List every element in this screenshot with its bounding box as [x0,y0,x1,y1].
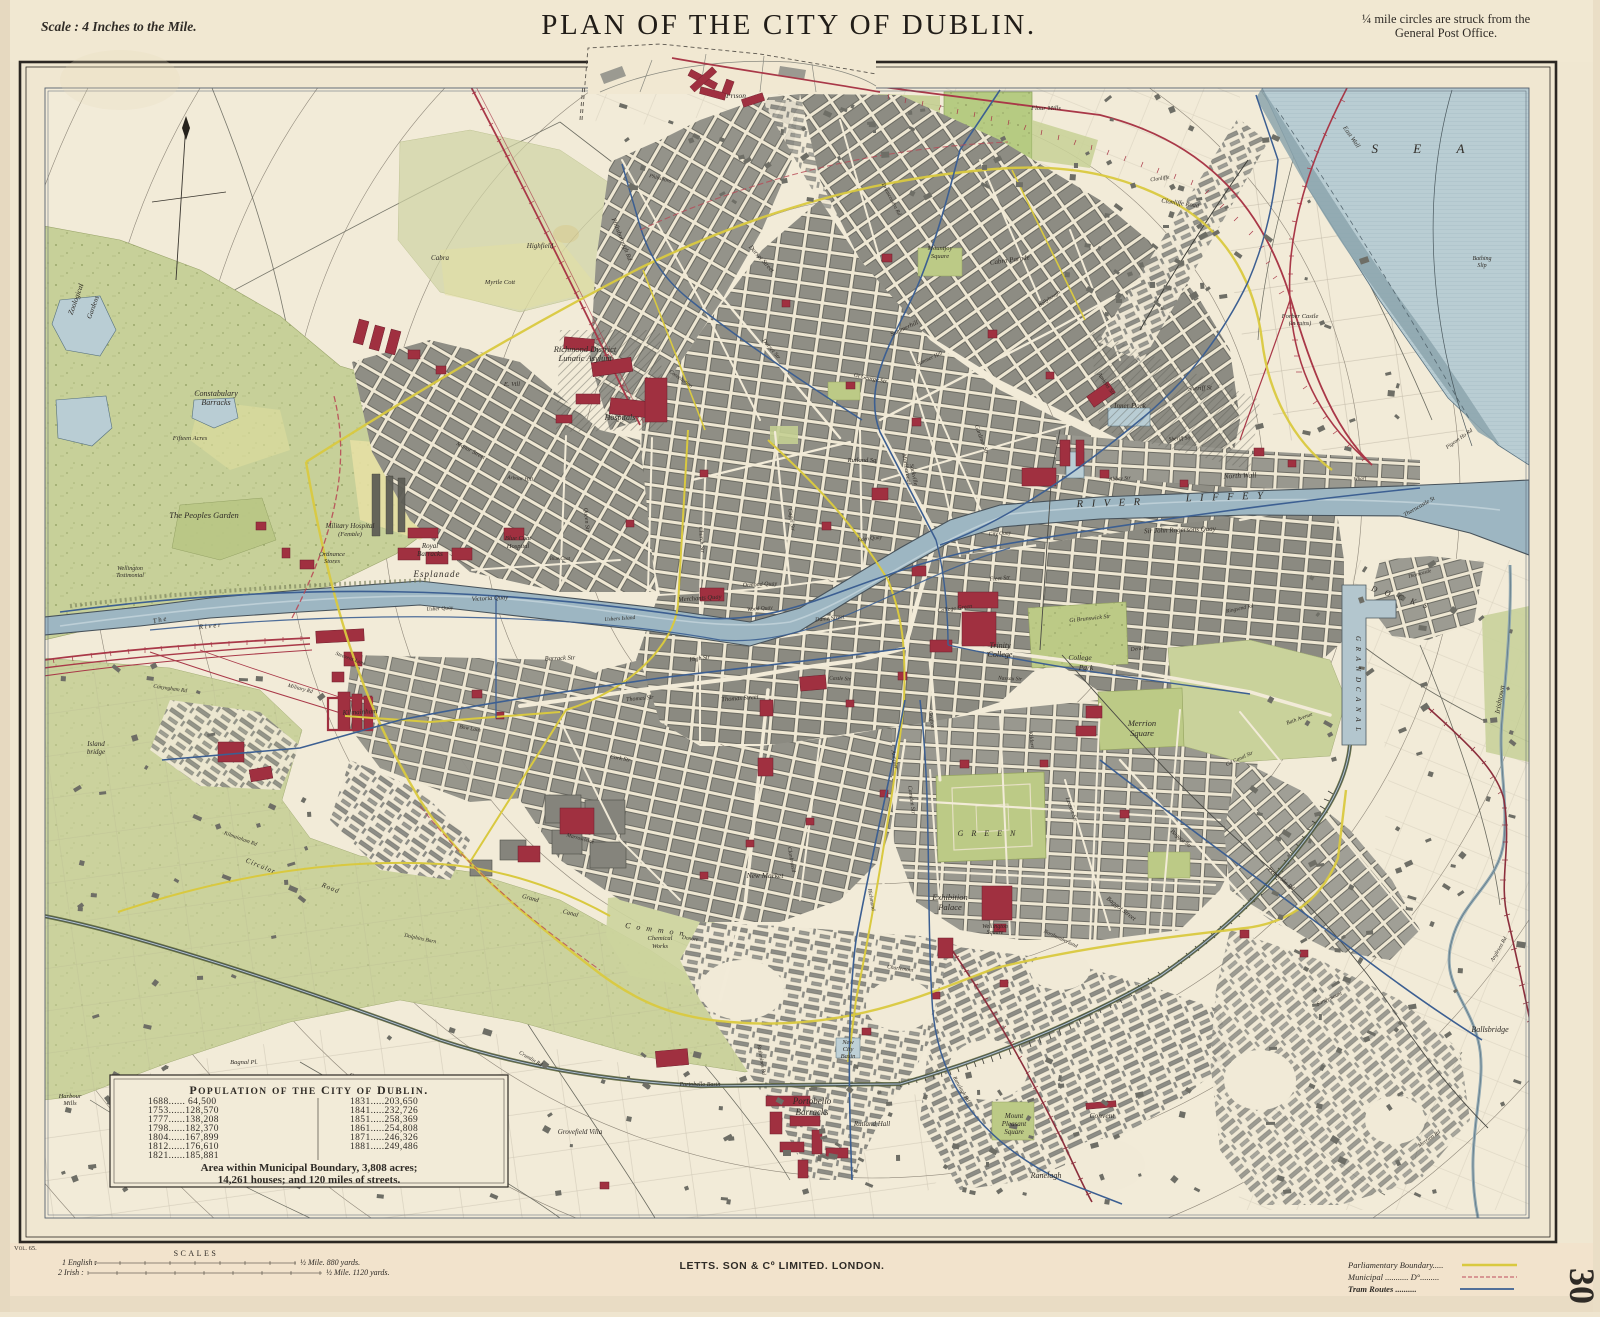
svg-text:Municipal ........... D°......: Municipal ........... D°......... [1347,1272,1439,1282]
svg-text:Blue Coat: Blue Coat [505,535,531,542]
svg-text:G R E E N: G R E E N [958,829,1019,838]
svg-text:PLAN OF THE CITY OF DUBLI: PLAN OF THE CITY OF DUBLIN. [541,9,1037,41]
svg-text:North Wall: North Wall [1222,470,1256,480]
svg-text:Square: Square [931,253,949,260]
svg-text:30: 30 [1562,1268,1600,1304]
svg-text:Trinity: Trinity [989,641,1011,650]
svg-text:City: City [843,1046,854,1053]
svg-text:Myrtle Cott: Myrtle Cott [484,279,515,286]
svg-text:Grovefield Villa: Grovefield Villa [558,1128,603,1136]
svg-text:Blue Coat: Blue Coat [550,557,571,562]
svg-text:Testimonial: Testimonial [116,573,144,579]
svg-text:Park: Park [1078,663,1094,672]
svg-text:Merrion: Merrion [1127,718,1156,728]
svg-text:VOL. 65.: VOL. 65. [14,1245,37,1252]
svg-text:14,261 houses; and 120 miles o: 14,261 houses; and 120 miles of streets. [218,1174,401,1186]
svg-text:E. Vill: E. Vill [503,381,520,388]
svg-text:Castle Str: Castle Str [829,675,852,682]
svg-text:Esplanade: Esplanade [413,569,461,579]
svg-text:Highfield: Highfield [526,242,554,250]
svg-text:New: New [841,1039,854,1046]
svg-text:Rutland Hall: Rutland Hall [853,1120,890,1128]
svg-text:(in ruins): (in ruins) [1289,320,1312,327]
svg-text:1821......185,881: 1821......185,881 [148,1151,219,1161]
svg-text:Island: Island [86,740,105,748]
svg-text:Hospital: Hospital [506,543,530,550]
svg-text:Barrack Str: Barrack Str [545,654,576,662]
svg-text:Military Hospital: Military Hospital [325,522,375,530]
svg-text:Area within Municipal Boundary: Area within Municipal Boundary, 3,808 ac… [201,1162,418,1174]
svg-text:Square: Square [1130,728,1154,738]
svg-text:Works: Works [652,943,668,950]
svg-text:Square: Square [1004,1128,1024,1136]
svg-text:Inner Dock: Inner Dock [1113,402,1147,410]
svg-text:Flour Mills: Flour Mills [1030,105,1061,112]
svg-text:Royal: Royal [421,542,438,550]
svg-text:Rutland Sq: Rutland Sq [847,457,877,464]
svg-text:G R A N D: G R A N D [1354,636,1362,684]
svg-text:1881.....249,486: 1881.....249,486 [350,1142,418,1152]
svg-text:New Market: New Market [746,871,785,880]
svg-text:Mills: Mills [62,1100,77,1107]
svg-text:Slip: Slip [1477,263,1486,269]
svg-text:1 English :: 1 English : [62,1258,97,1267]
svg-text:R I V E R: R I V E R [1076,497,1144,510]
svg-text:S E A: S E A [1372,141,1481,156]
svg-text:LETTS. SON & Cº LIMITED. LONDO: LETTS. SON & Cº LIMITED. LONDON. [679,1260,884,1272]
svg-text:2 Irish :: 2 Irish : [58,1268,84,1277]
svg-text:The Peoples Garden: The Peoples Garden [169,510,239,520]
svg-text:Parliamentary Boundary.....: Parliamentary Boundary..... [1347,1260,1443,1270]
svg-text:¼ mile circles are struck from: ¼ mile circles are struck from the [1362,12,1531,26]
svg-text:Ranelagh: Ranelagh [1030,1171,1062,1180]
svg-text:Cabra: Cabra [431,254,449,262]
svg-text:Bagnal Pl.: Bagnal Pl. [230,1059,258,1066]
svg-text:Ballsbridge: Ballsbridge [1471,1025,1509,1034]
svg-text:Barracks: Barracks [417,550,443,558]
svg-text:Ordnance: Ordnance [319,551,345,558]
svg-text:Square: Square [987,930,1004,936]
svg-text:Bathing: Bathing [1473,256,1492,262]
svg-text:Fifteen Acres: Fifteen Acres [172,435,208,442]
svg-text:Barracks: Barracks [796,1107,829,1117]
svg-text:Chemical: Chemical [648,935,673,942]
svg-text:Basin: Basin [841,1053,856,1060]
svg-text:(Female): (Female) [338,531,362,538]
svg-text:Barracks: Barracks [201,398,230,407]
svg-text:Tram Routes ..........: Tram Routes .......... [1348,1284,1417,1294]
svg-text:College: College [988,650,1013,659]
svg-text:Mount: Mount [1004,1112,1024,1120]
svg-text:Pleasant: Pleasant [1001,1120,1028,1128]
svg-text:Sheriff St: Sheriff St [1188,384,1213,392]
svg-text:Lunatic Asylum: Lunatic Asylum [558,353,612,363]
svg-text:Exhibition: Exhibition [931,892,967,902]
svg-text:C A N A L: C A N A L [1354,687,1362,733]
svg-text:½ Mile. 1120 yards.: ½ Mile. 1120 yards. [326,1268,390,1277]
svg-text:½ Mile. 880 yards.: ½ Mile. 880 yards. [300,1258,360,1267]
svg-text:Portobello: Portobello [792,1096,832,1106]
svg-text:College: College [1068,653,1092,662]
svg-text:bridge: bridge [87,748,105,756]
svg-text:Wellington: Wellington [117,566,143,572]
svg-text:Forber Castle: Forber Castle [1281,313,1319,320]
svg-text:Hospitals: Hospitals [604,413,636,422]
svg-text:Constabulary: Constabulary [194,389,238,398]
svg-text:Palace: Palace [937,902,962,912]
svg-text:Portobello Basin: Portobello Basin [679,1082,721,1088]
svg-text:SCALES: SCALES [174,1249,219,1258]
svg-text:Convent: Convent [1090,1111,1116,1120]
svg-text:Stores: Stores [324,558,340,565]
svg-text:Mountjoy: Mountjoy [927,245,953,252]
svg-text:Scale : 4 Inches to the Mile.: Scale : 4 Inches to the Mile. [41,19,197,34]
svg-text:Harbour: Harbour [58,1093,82,1100]
svg-text:General Post Office.: General Post Office. [1395,26,1497,40]
